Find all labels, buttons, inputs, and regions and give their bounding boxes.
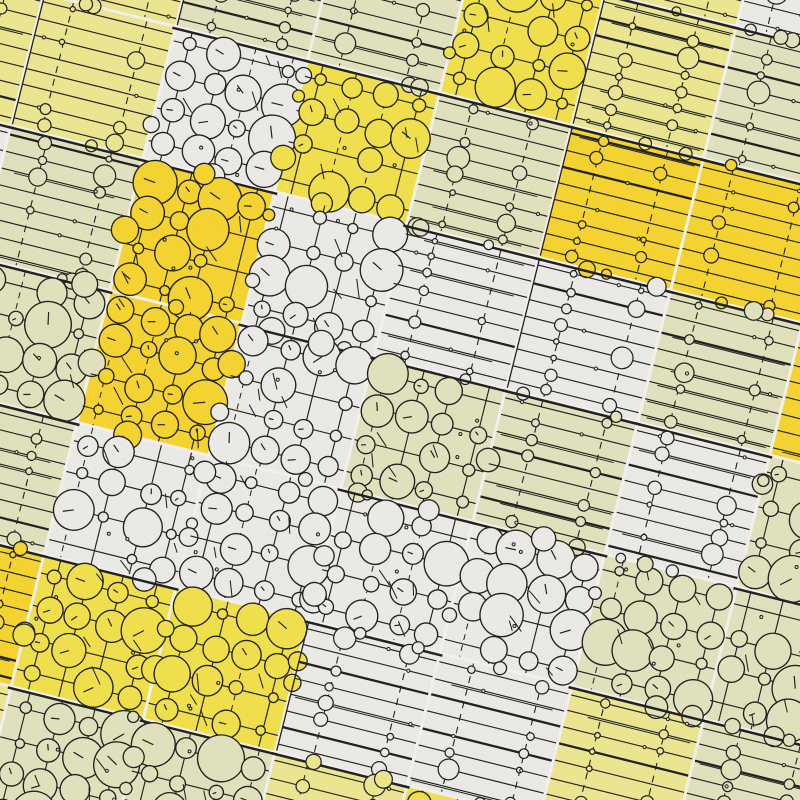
grain-overlay xyxy=(0,0,800,800)
generative-artwork xyxy=(0,0,800,800)
artwork-svg xyxy=(0,0,800,800)
